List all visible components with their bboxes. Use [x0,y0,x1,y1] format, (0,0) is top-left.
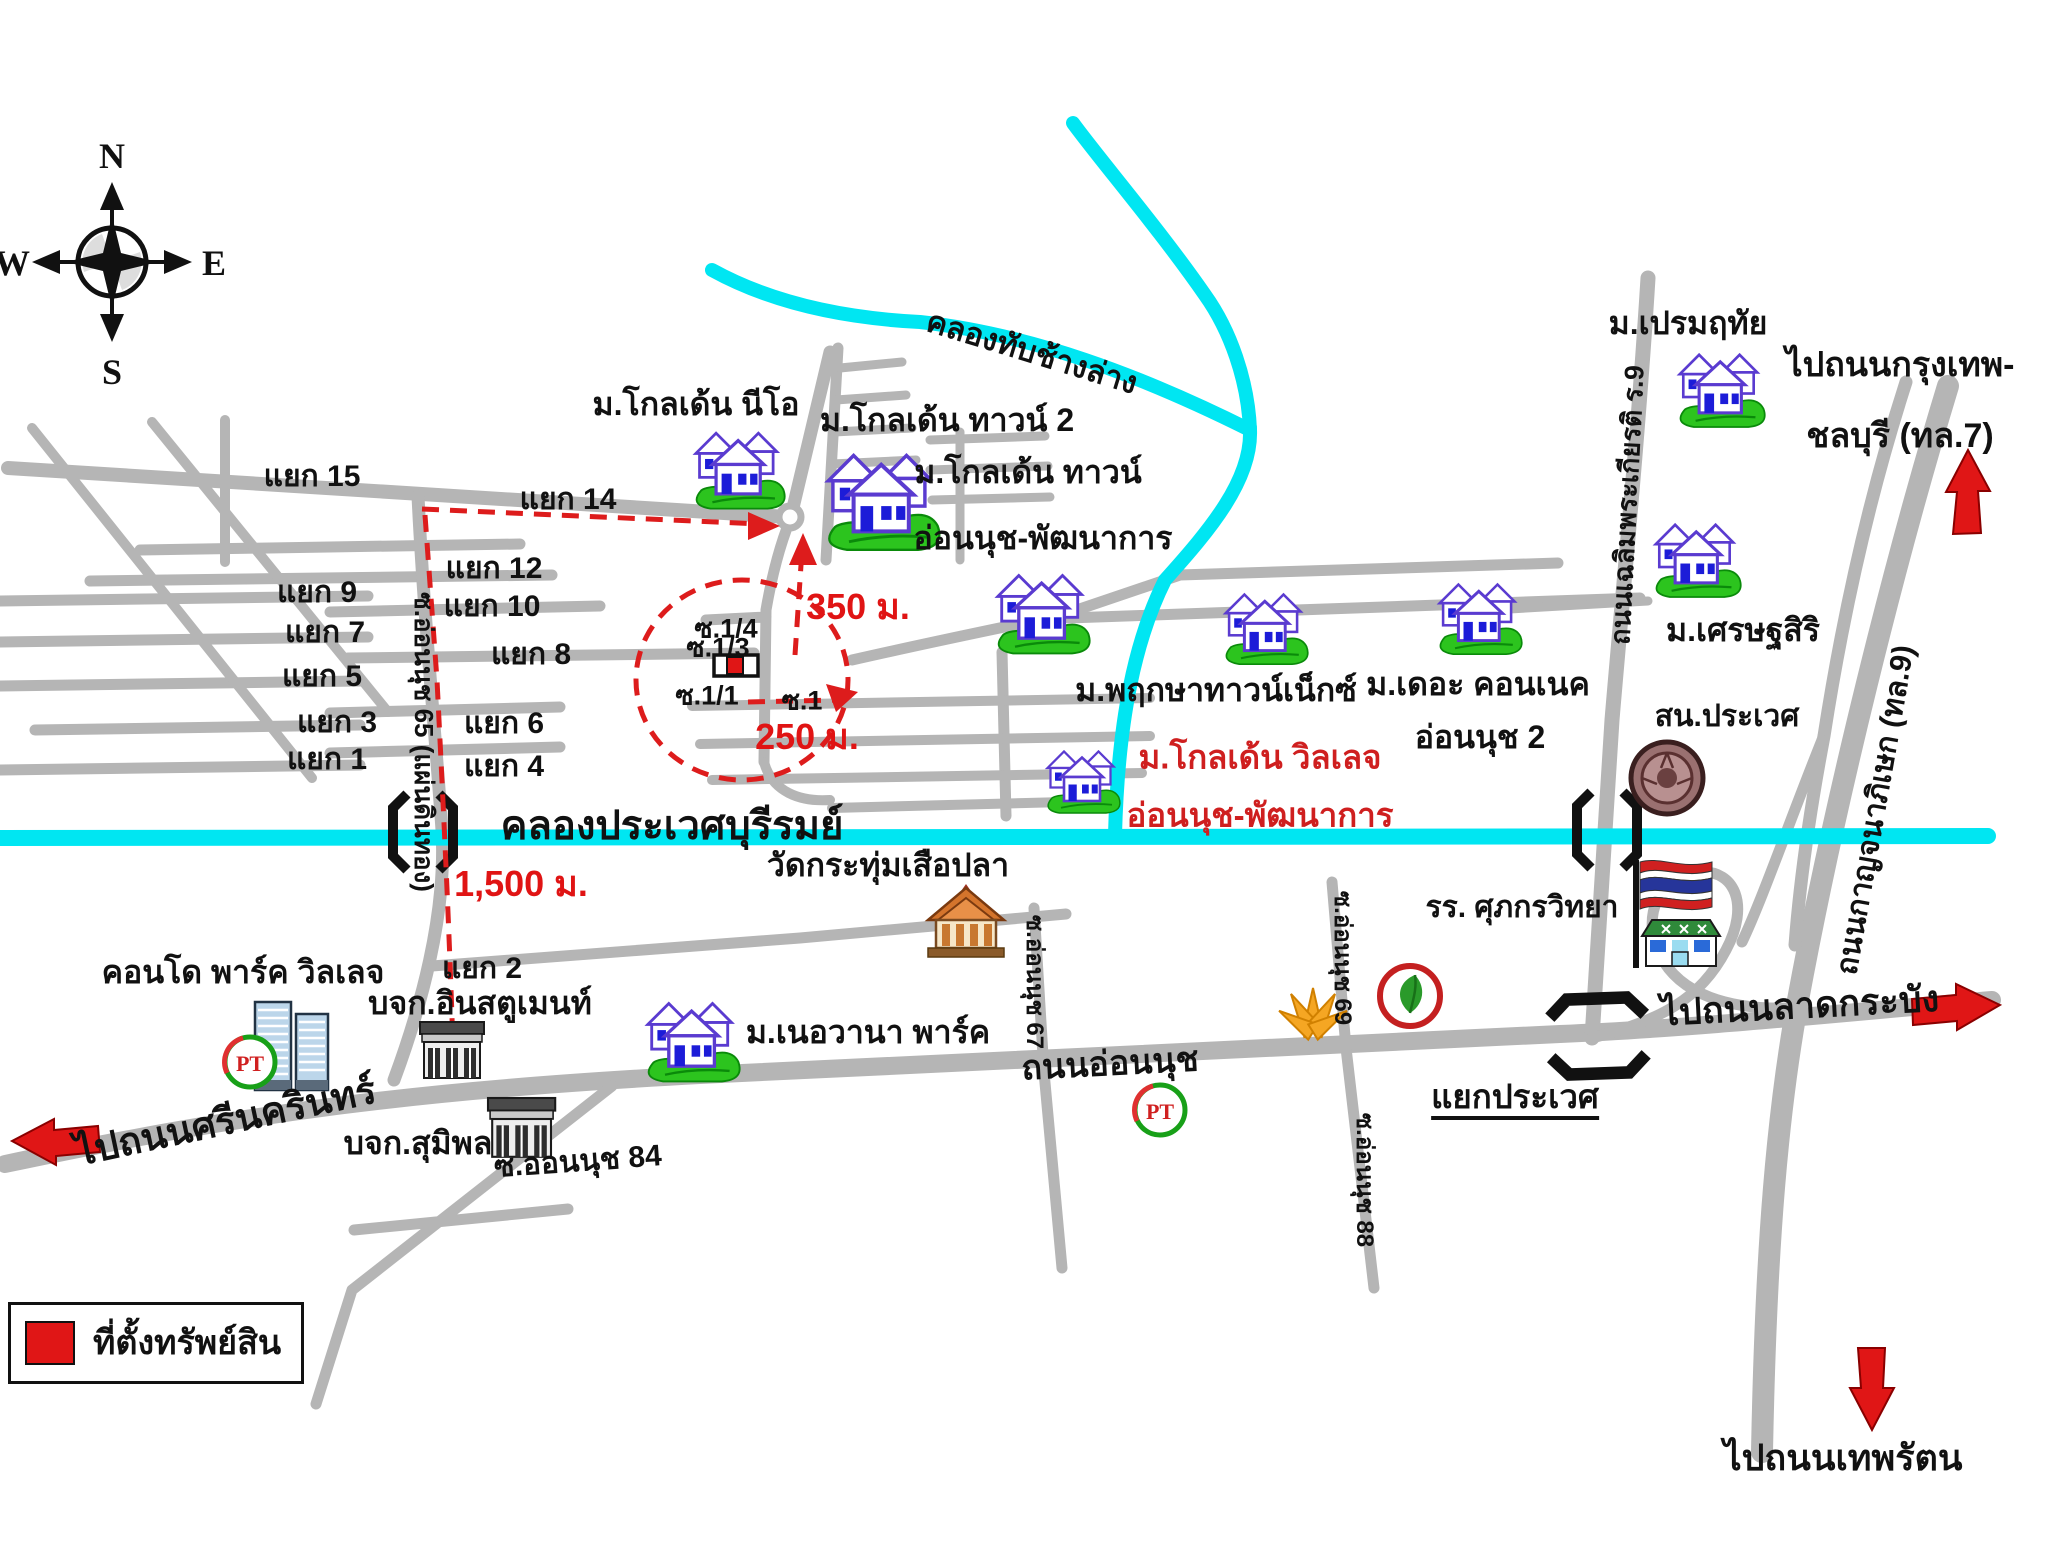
label-golden-town2: ม.โกลเด้น ทาวน์ 2 [820,404,1074,436]
direction-label-tl7-line1: ไปถนนกรุงเทพ- [1786,348,2015,382]
label-golden-town-onnut-1: ม.โกลเด้น ทาวน์ [914,456,1142,488]
legend-box: ที่ตั้งทรัพย์สิน [8,1302,304,1384]
label-instrument: บจก.อินสตูเมนท์ [368,987,592,1019]
canal-prawet-buri-rom [0,836,1988,838]
legend-property-label: ที่ตั้งทรัพย์สิน [93,1326,281,1360]
junction-label-4: แยก 4 [464,752,544,782]
junction-label-6: แยก 6 [464,709,544,739]
village-icon-golden-village [1048,752,1120,814]
road-label-soi67: ซ.อ่อนนุช 67 [1022,915,1046,1049]
village-icon-prem-ruethai [1680,355,1765,427]
village-icon-pruksa [1226,595,1308,665]
label-police-prawet: สน.ประเวศ [1655,702,1800,732]
label-setthasiri: ม.เศรษฐสิริ [1666,614,1820,646]
soi-label-1-1: ซ.1/1 [675,683,738,710]
village-icon-connect [1440,585,1522,655]
green-leaf-bank-icon [1380,966,1440,1026]
label-pruksa: ม.พฤกษาทาวน์เน็กซ์ [1075,674,1357,706]
soi-label-1: ซ.1 [782,688,823,715]
junction-label-2: แยก 2 [442,954,522,984]
label-condo-park-village: คอนโด พาร์ค วิลเลจ [102,956,385,988]
label-golden-village-line1: ม.โกลเด้น วิลเลจ [1139,741,1382,774]
label-golden-neo: ม.โกลเด้น นีโอ [593,388,800,420]
road-label-onnut: ถนนอ่อนนุช [1020,1042,1199,1085]
junction-label-3: แยก 3 [297,708,377,738]
property-location-map: PT [0,0,2048,1565]
junction-label-prawet: แยกประเวศ [1431,1080,1599,1120]
village-icon-golden-town-onnut [998,576,1090,654]
village-icon-golden-neo [696,433,785,508]
distance-350m: 350 ม. [806,589,910,625]
label-golden-town-onnut-2: อ่อนนุช-พัฒนาการ [914,522,1173,554]
label-prem-ruethai: ม.เปรมฤทัย [1609,307,1768,339]
road-label-soi88: ซ.อ่อนนุช 88 [1352,1113,1376,1247]
village-icon-nirvana [648,1004,740,1082]
road-label-soi65: ซ.อ่อนนุช 65 (แผ่นดินทอง) [411,592,437,892]
arrow-to-tl7 [1946,450,1990,534]
junction-label-8: แยก 8 [491,640,571,670]
junction-label-7: แยก 7 [285,618,365,648]
junction-label-12: แยก 12 [446,554,543,584]
compass-e: E [202,243,226,283]
compass-s: S [102,352,122,392]
label-connect-line1: ม.เดอะ คอนเนค [1366,668,1590,700]
junction-label-5: แยก 5 [282,662,362,692]
temple-icon [928,884,1004,957]
arrow-to-theppharat [1850,1348,1894,1430]
label-nirvana-park: ม.เนอวานา พาร์ค [746,1016,990,1048]
junction-label-14: แยก 14 [520,485,617,515]
road-node [779,506,801,528]
compass-n: N [99,136,125,176]
label-connect-line2: อ่อนนุช 2 [1415,721,1546,753]
distance-250m: 250 ม. [755,719,859,755]
direction-label-tl7-line2: ชลบุรี (ทล.7) [1806,419,1993,453]
legend-property-swatch [25,1321,75,1365]
label-golden-village-line2: อ่อนนุช-พัฒนาการ [1126,799,1393,832]
village-icon-setthasiri [1656,525,1741,597]
compass-rose: N S W E [0,136,226,392]
junction-label-1: แยก 1 [287,745,367,775]
direction-label-theppharat: ไปถนนเทพรัตน [1723,1440,1962,1476]
junction-label-10: แยก 10 [444,592,541,622]
junction-label-15: แยก 15 [264,462,361,492]
soi-label-1-3: ซ.1/3 [686,635,749,662]
junction-label-9: แยก 9 [277,578,357,608]
label-school-supakorn: รร. ศุภกรวิทยา [1425,893,1618,923]
label-sumipol: บจก.สุมิพล [344,1127,493,1159]
storefront-icon-instrument [420,1022,484,1078]
police-emblem-icon [1631,742,1703,814]
label-wat-kratum: วัดกระทุ่มเสือปลา [767,849,1009,881]
distance-1500m: 1,500 ม. [454,866,588,902]
pt-gas-station-icon [1135,1085,1185,1135]
map-canvas: PT [0,0,2048,1565]
pt-gas-station-icon [225,1037,275,1087]
canal-label-prawet: คลองประเวศบุรีรมย์ [501,806,844,846]
road-label-soi69: ซ.อ่อนนุช 69 [1330,891,1354,1025]
compass-w: W [0,243,30,283]
